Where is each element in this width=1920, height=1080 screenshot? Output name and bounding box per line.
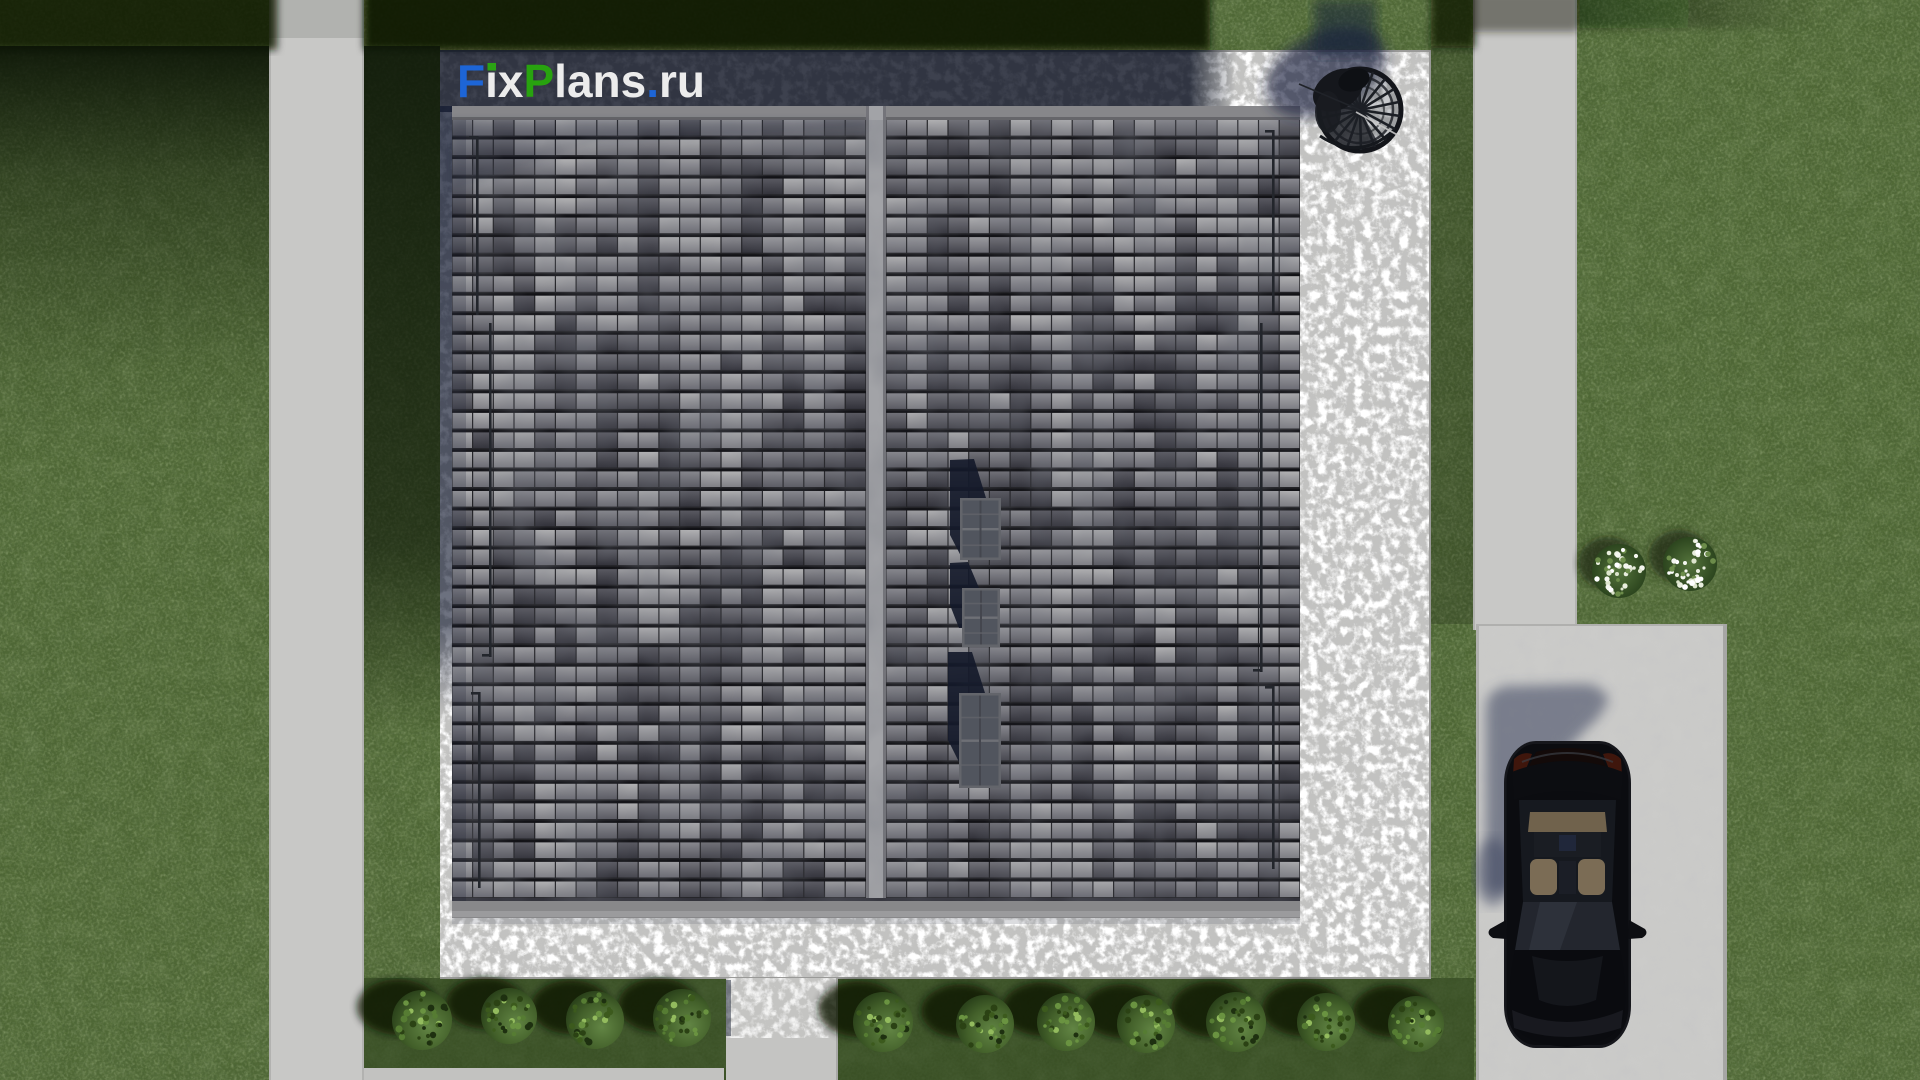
- svg-text:FixPlans.ru: FixPlans.ru: [457, 55, 705, 107]
